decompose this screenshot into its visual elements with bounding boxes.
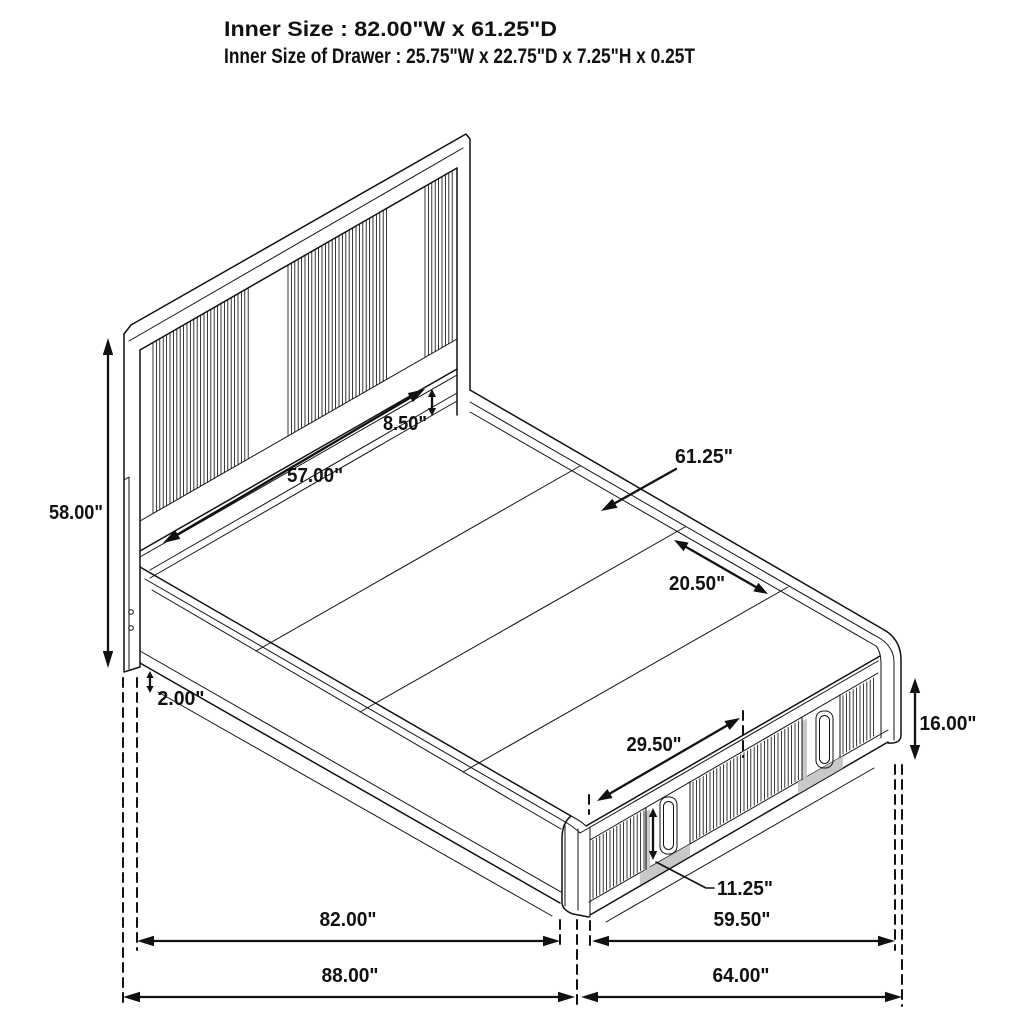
dim-inner-width: 59.50": [714, 909, 771, 931]
dim-inner-length: 82.00": [320, 909, 377, 931]
dim-drawer-width: 29.50": [627, 734, 682, 756]
headboard: [124, 134, 470, 672]
dim-headboard-width: 57.00": [287, 465, 343, 487]
platform-deck: [140, 390, 886, 829]
dim-headboard-gap: 8.50": [383, 413, 427, 435]
dim-headboard-height: 58.00": [49, 502, 103, 524]
bed-dimension-diagram-page: Inner Size : 82.00"W x 61.25"D Inner Siz…: [0, 0, 1024, 1024]
dimension-arrows: [103, 338, 920, 1002]
deck-plank-seams: [256, 466, 788, 772]
dim-deck-depth: 61.25": [675, 446, 733, 468]
drawer-handle-left: [660, 797, 677, 854]
drawer-handle-right: [816, 711, 833, 768]
dim-deck-plank: 20.50": [669, 573, 725, 595]
drawer-handle-left-inner: [664, 802, 674, 850]
drawer-handle-right-inner: [820, 716, 830, 764]
dim-outer-length: 88.00": [322, 965, 379, 987]
drawer-front-slats: [593, 678, 874, 898]
title-inner-size: Inner Size : 82.00"W x 61.25"D: [224, 17, 557, 41]
right-corner-post: [876, 631, 901, 743]
dim-platform-height: 16.00": [920, 713, 977, 735]
dim-outer-width: 64.00": [713, 965, 770, 987]
dim-base-reveal: 2.00": [158, 688, 205, 710]
title-drawer-size: Inner Size of Drawer : 25.75"W x 22.75"D…: [224, 44, 695, 68]
bed-isometric-drawing: Inner Size : 82.00"W x 61.25"D Inner Siz…: [0, 0, 1024, 1024]
dim-drawer-handle-height: 11.25": [717, 878, 773, 900]
left-corner-post: [562, 816, 590, 917]
